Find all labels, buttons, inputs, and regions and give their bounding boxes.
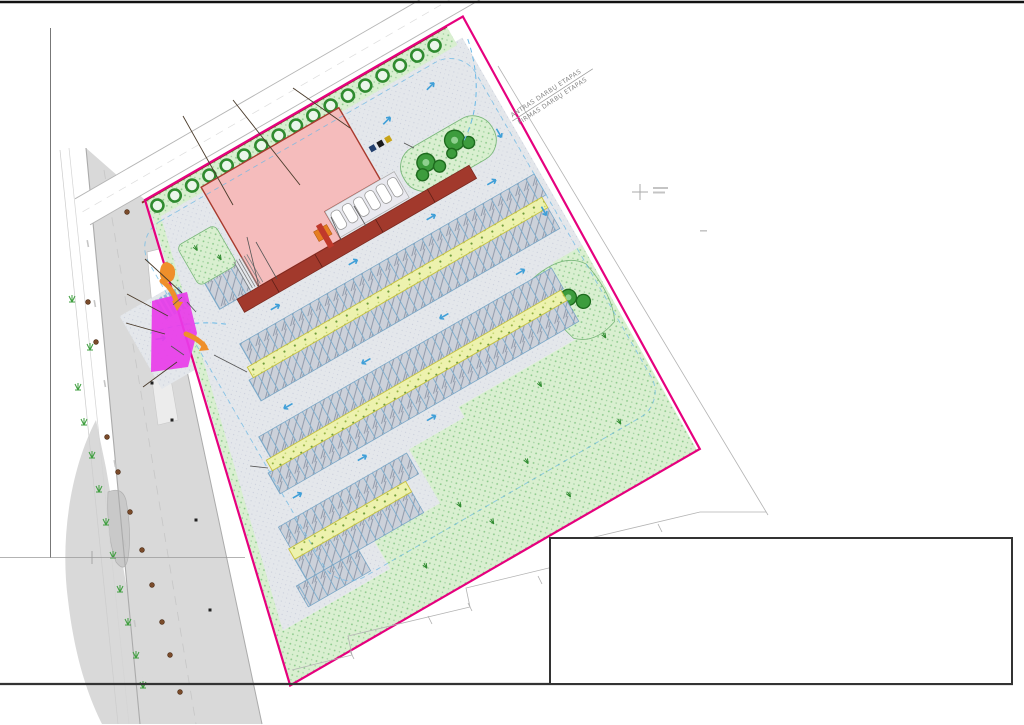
site-plan-drawing: ANTRAS DARBŲ ETAPAS PIRMAS DARBŲ ETAPAS	[0, 0, 1024, 725]
survey-tree-icon	[75, 383, 81, 390]
survey-tree-icon	[69, 295, 75, 302]
survey-pole-icon	[94, 340, 99, 345]
survey-tree-icon	[81, 418, 87, 425]
survey-pole-icon	[128, 510, 133, 515]
survey-pole-icon	[140, 548, 145, 553]
survey-tree-icon	[87, 343, 93, 350]
title-block-area	[550, 538, 1012, 684]
survey-pole-icon	[178, 690, 183, 695]
survey-pole-icon	[116, 470, 121, 475]
survey-pole-icon	[105, 435, 110, 440]
stage-boundary-label: ANTRAS DARBŲ ETAPAS PIRMAS DARBŲ ETAPAS	[508, 62, 598, 129]
survey-pole-icon	[160, 620, 165, 625]
survey-pole-icon	[168, 653, 173, 658]
survey-pole-icon	[86, 300, 91, 305]
survey-pole-icon	[150, 583, 155, 588]
stage-label-line1: ANTRAS DARBŲ ETAPAS	[510, 68, 583, 119]
drawing-canvas: ANTRAS DARBŲ ETAPAS PIRMAS DARBŲ ETAPAS	[0, 0, 1024, 725]
survey-pole-icon	[125, 210, 130, 215]
survey-cross-marker	[632, 184, 668, 200]
